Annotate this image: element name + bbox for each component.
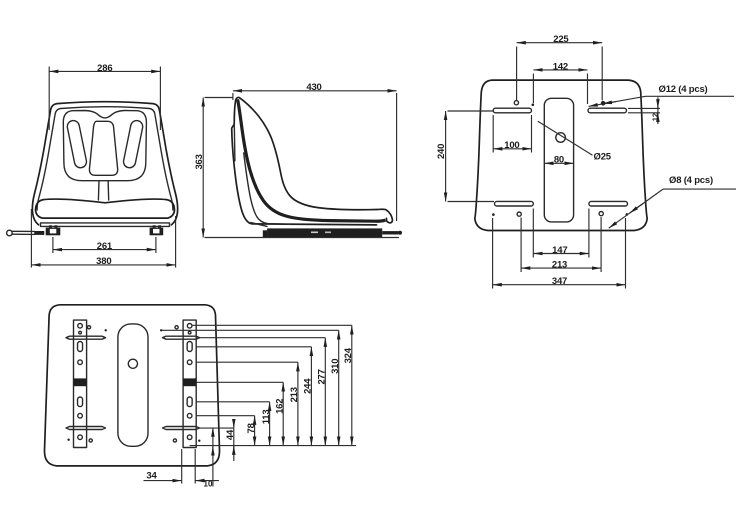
svg-text:10: 10 [204,480,213,489]
svg-text:225: 225 [553,34,569,45]
svg-text:213: 213 [289,387,300,402]
svg-text:78: 78 [246,423,257,433]
svg-text:261: 261 [97,241,113,252]
svg-text:430: 430 [306,82,321,93]
svg-text:286: 286 [97,63,112,74]
svg-text:44: 44 [225,429,236,440]
svg-text:147: 147 [552,245,567,256]
svg-text:324: 324 [343,347,354,363]
svg-text:12: 12 [651,113,660,121]
svg-text:363: 363 [194,154,205,169]
svg-text:142: 142 [553,61,568,72]
svg-text:213: 213 [552,259,567,270]
svg-text:34: 34 [146,470,157,481]
svg-text:347: 347 [552,276,567,287]
svg-text:Ø8 (4 pcs): Ø8 (4 pcs) [669,175,713,186]
svg-text:162: 162 [275,399,286,414]
svg-text:240: 240 [436,144,447,159]
svg-text:Ø25: Ø25 [594,152,612,163]
svg-text:Ø12 (4 pcs): Ø12 (4 pcs) [659,84,708,95]
svg-text:380: 380 [96,256,111,267]
svg-text:244: 244 [303,378,314,394]
svg-text:113: 113 [261,410,272,425]
svg-text:80: 80 [554,155,564,166]
svg-text:310: 310 [330,359,341,374]
svg-text:277: 277 [317,369,328,384]
svg-text:100: 100 [504,140,519,151]
